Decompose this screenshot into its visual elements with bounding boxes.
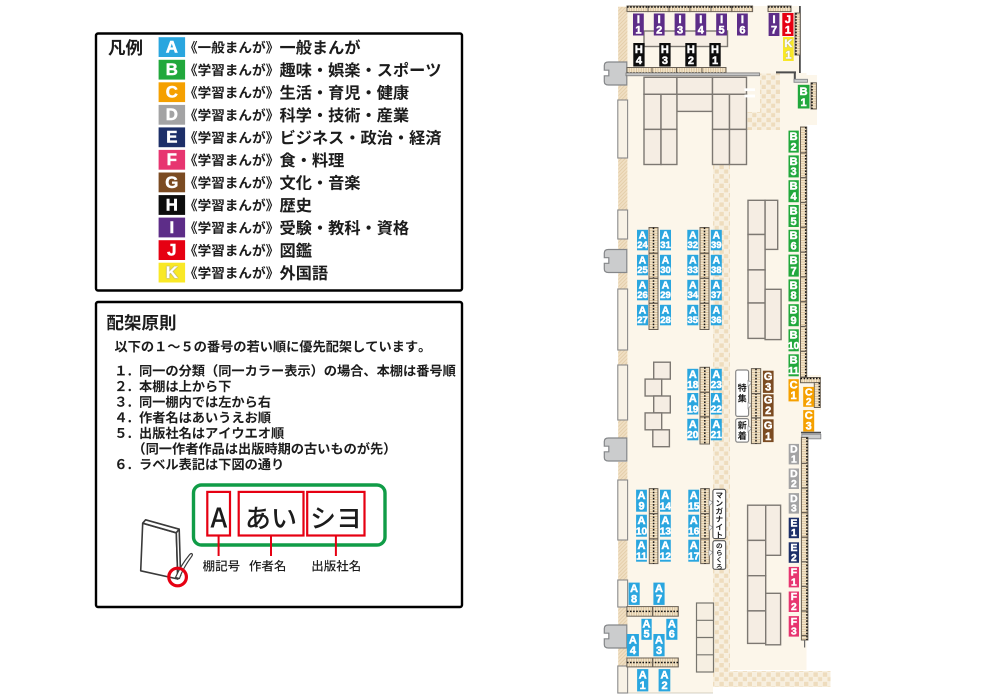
svg-text:2: 2 [661, 680, 667, 692]
svg-text:15: 15 [688, 502, 700, 513]
svg-text:7: 7 [656, 594, 662, 606]
svg-text:4: 4 [698, 24, 705, 36]
svg-text:9: 9 [791, 315, 797, 327]
svg-text:G: G [165, 173, 178, 192]
svg-text:A: A [712, 393, 720, 405]
svg-text:2: 2 [791, 553, 797, 564]
svg-text:22: 22 [711, 404, 723, 415]
svg-text:B: B [800, 86, 808, 98]
svg-text:1: 1 [635, 24, 641, 36]
svg-text:13: 13 [660, 527, 672, 538]
svg-text:A: A [712, 419, 720, 431]
svg-text:I: I [169, 218, 174, 237]
svg-text:1: 1 [791, 577, 797, 588]
svg-text:37: 37 [711, 290, 722, 301]
svg-text:32: 32 [688, 240, 699, 251]
svg-text:1: 1 [791, 390, 797, 402]
svg-text:4: 4 [630, 645, 637, 657]
svg-text:5: 5 [643, 629, 649, 641]
svg-text:C: C [166, 83, 178, 102]
svg-text:2: 2 [791, 479, 797, 490]
svg-text:1: 1 [712, 55, 718, 67]
svg-text:2: 2 [806, 397, 812, 408]
svg-text:A: A [689, 393, 697, 405]
svg-text:A: A [638, 540, 646, 552]
svg-text:1: 1 [640, 680, 646, 692]
svg-text:B: B [790, 330, 798, 342]
svg-text:H: H [687, 44, 695, 56]
svg-text:J: J [167, 241, 176, 260]
svg-text:E: E [166, 128, 177, 147]
svg-text:5: 5 [719, 24, 725, 36]
svg-text:10: 10 [636, 527, 648, 538]
svg-text:A: A [712, 369, 720, 381]
svg-text:3: 3 [791, 504, 797, 515]
svg-text:1: 1 [801, 97, 807, 109]
svg-text:4: 4 [791, 191, 798, 203]
svg-text:2: 2 [656, 24, 662, 36]
svg-text:29: 29 [660, 290, 671, 301]
svg-text:12: 12 [660, 552, 672, 563]
svg-text:1: 1 [791, 528, 797, 539]
svg-text:7: 7 [791, 265, 797, 277]
svg-text:25: 25 [637, 265, 648, 276]
svg-text:6: 6 [739, 24, 745, 36]
svg-text:3: 3 [677, 24, 683, 36]
svg-text:A: A [661, 540, 669, 552]
svg-text:A: A [689, 369, 697, 381]
svg-text:B: B [790, 355, 798, 367]
svg-text:38: 38 [711, 265, 722, 276]
svg-text:1: 1 [785, 25, 791, 37]
svg-text:11: 11 [788, 366, 799, 377]
svg-text:8: 8 [791, 290, 797, 302]
svg-text:2: 2 [791, 141, 797, 153]
svg-text:17: 17 [688, 552, 700, 563]
svg-text:2: 2 [765, 405, 771, 417]
svg-text:A: A [638, 515, 646, 527]
svg-text:35: 35 [688, 315, 699, 326]
svg-text:9: 9 [638, 501, 644, 513]
svg-text:2: 2 [688, 55, 694, 67]
svg-text:28: 28 [660, 315, 671, 326]
svg-text:A: A [690, 515, 698, 527]
svg-text:6: 6 [791, 241, 797, 253]
svg-text:3: 3 [662, 55, 668, 67]
svg-text:A: A [690, 490, 698, 502]
svg-text:18: 18 [687, 380, 699, 391]
svg-text:3: 3 [806, 420, 812, 432]
svg-text:A: A [661, 490, 669, 502]
svg-text:14: 14 [660, 502, 672, 513]
svg-text:10: 10 [788, 341, 800, 352]
svg-text:A: A [689, 419, 697, 431]
svg-text:H: H [166, 195, 178, 214]
svg-text:5: 5 [791, 216, 797, 228]
svg-text:11: 11 [636, 552, 647, 563]
svg-text:26: 26 [637, 290, 648, 301]
svg-text:H: H [661, 44, 669, 56]
svg-text:27: 27 [637, 315, 648, 326]
svg-text:A: A [166, 38, 178, 57]
svg-text:39: 39 [711, 240, 722, 251]
svg-text:F: F [167, 150, 177, 169]
svg-text:K: K [166, 263, 178, 282]
svg-text:3: 3 [791, 627, 797, 638]
svg-text:2: 2 [791, 602, 797, 613]
svg-text:1: 1 [791, 454, 797, 465]
svg-text:34: 34 [688, 290, 699, 301]
svg-text:A: A [661, 515, 669, 527]
svg-text:3: 3 [656, 645, 662, 657]
svg-text:3: 3 [765, 382, 771, 394]
svg-text:24: 24 [637, 240, 648, 251]
svg-text:H: H [711, 44, 719, 56]
svg-text:16: 16 [688, 527, 700, 538]
svg-text:36: 36 [711, 315, 722, 326]
svg-text:7: 7 [771, 25, 777, 37]
svg-text:8: 8 [631, 594, 637, 606]
svg-text:1: 1 [765, 431, 771, 443]
svg-text:4: 4 [636, 55, 643, 67]
svg-text:K: K [784, 38, 792, 50]
svg-text:33: 33 [688, 265, 699, 276]
svg-text:H: H [635, 44, 643, 56]
svg-text:6: 6 [669, 629, 675, 641]
svg-text:23: 23 [711, 380, 723, 391]
svg-text:A: A [690, 540, 698, 552]
svg-text:20: 20 [687, 430, 699, 441]
svg-text:3: 3 [791, 166, 797, 178]
svg-text:1: 1 [785, 50, 791, 62]
svg-text:B: B [166, 60, 178, 79]
svg-text:30: 30 [660, 265, 671, 276]
svg-text:D: D [166, 105, 178, 124]
svg-text:21: 21 [711, 430, 723, 441]
svg-text:31: 31 [660, 240, 671, 251]
svg-text:19: 19 [687, 404, 699, 415]
